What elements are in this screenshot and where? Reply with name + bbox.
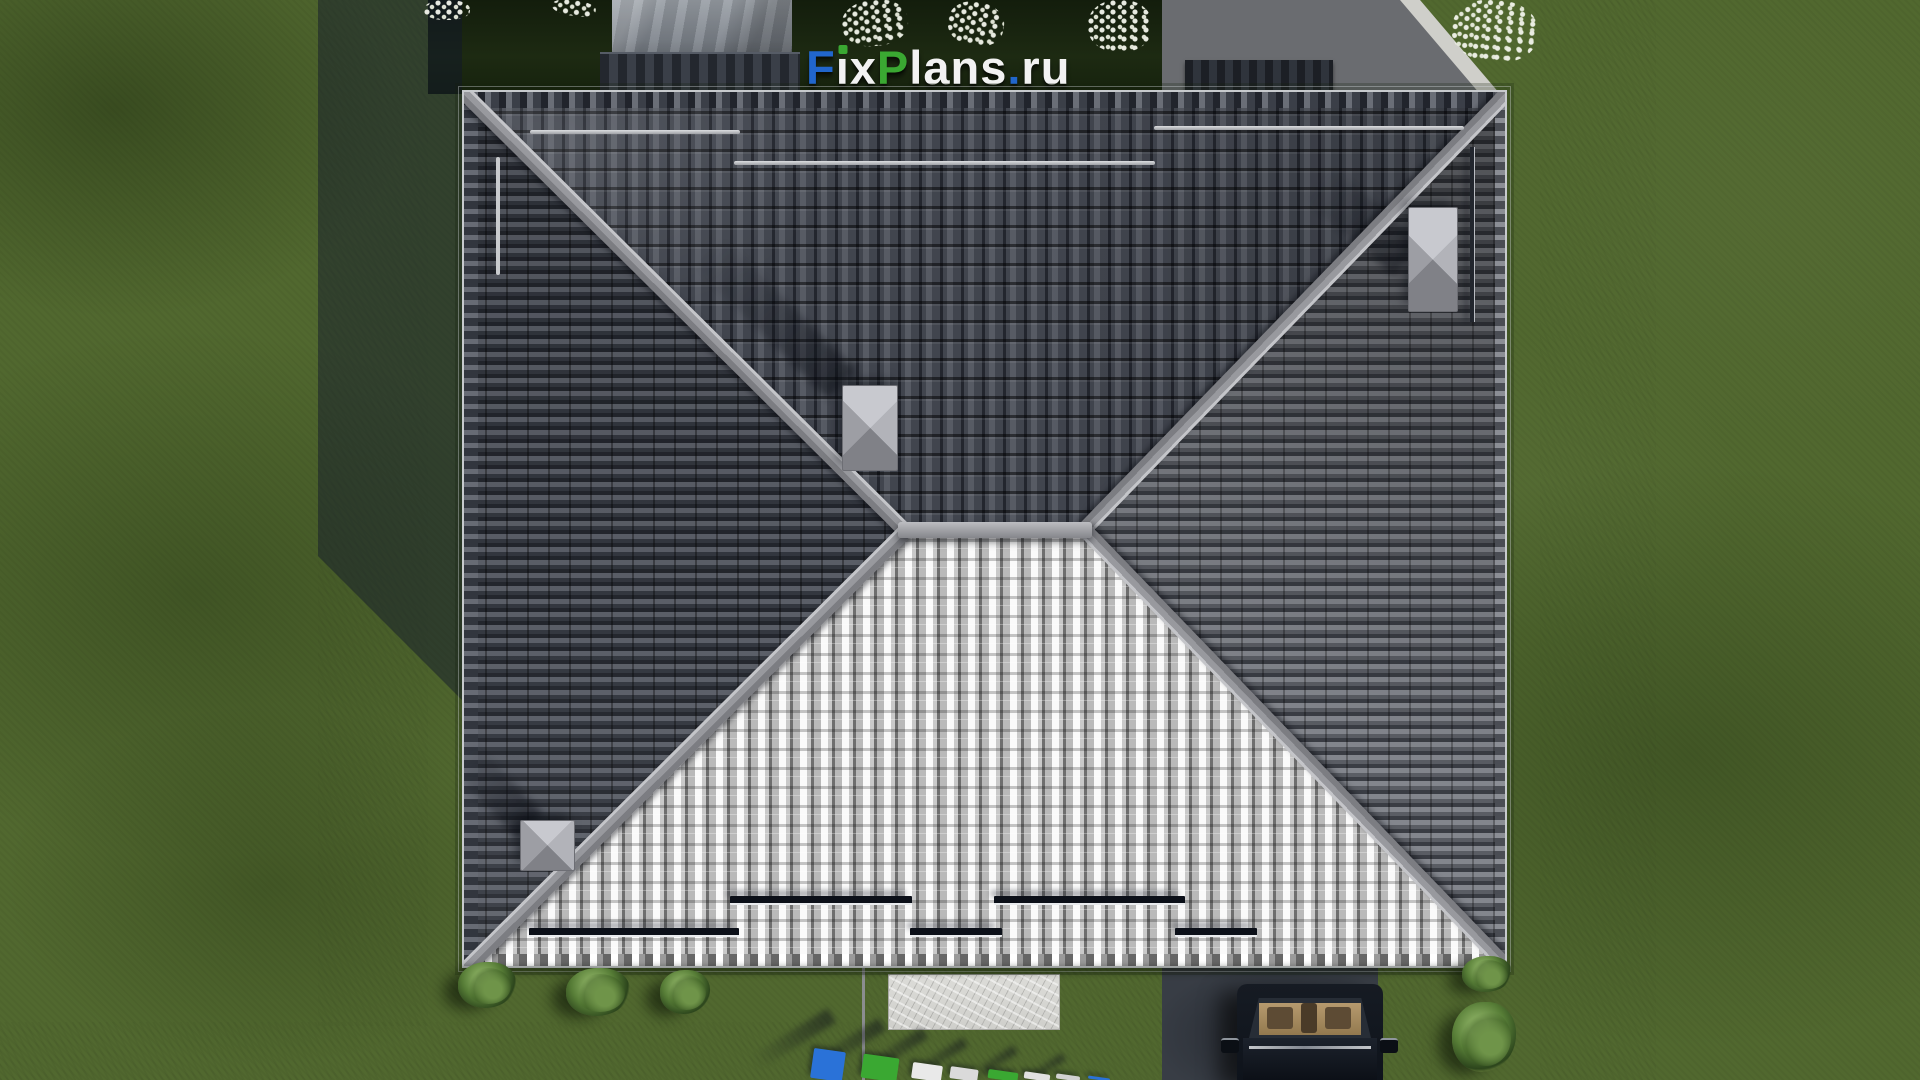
- flower-cluster: [424, 0, 470, 20]
- watermark-bottom-block: [911, 1062, 943, 1080]
- watermark-letter: ı: [836, 44, 850, 91]
- car-seat: [1325, 1007, 1351, 1029]
- watermark-letter: n: [950, 44, 980, 91]
- watermark-letter: a: [923, 44, 950, 91]
- snow-guard: [1154, 126, 1464, 130]
- car-mirror-left: [1221, 1038, 1239, 1053]
- fence-segment: [1185, 60, 1333, 94]
- eave-ribs-left: [464, 92, 478, 968]
- eave-ribs-top: [464, 92, 1507, 108]
- driveway-light-strip: [1378, 966, 1432, 1080]
- watermark-letter: F: [806, 44, 836, 91]
- bottom-walkway: [0, 1022, 880, 1080]
- watermark-letter: r: [1021, 44, 1040, 91]
- bush: [1462, 956, 1512, 992]
- watermark-text: FıxPlans.ru: [806, 44, 1070, 91]
- car-interior: [1259, 1003, 1361, 1035]
- hip-roof: [462, 90, 1507, 968]
- snow-guard: [994, 896, 1185, 905]
- snow-guard: [910, 928, 1002, 937]
- roof-vent: [842, 385, 898, 471]
- watermark-letter-dot: [838, 45, 847, 54]
- snow-guard: [1175, 928, 1257, 937]
- eave-ribs-right: [1495, 92, 1507, 968]
- bush: [1452, 1002, 1516, 1072]
- flower-cluster: [1088, 0, 1152, 52]
- roof-vent: [520, 820, 575, 871]
- bush: [458, 962, 516, 1008]
- watermark-letter: u: [1041, 44, 1071, 91]
- roof-vent: [1408, 207, 1458, 312]
- watermark-letter: .: [1007, 44, 1021, 91]
- watermark-letter: x: [850, 44, 877, 91]
- snow-guard: [530, 130, 740, 134]
- car-mirror-right: [1380, 1038, 1398, 1053]
- snow-guard: [1470, 147, 1475, 322]
- main-ridge: [898, 522, 1092, 538]
- snow-guard: [529, 928, 739, 937]
- right-walkway: [1540, 0, 1656, 1080]
- watermark-letter: P: [877, 44, 909, 91]
- car-seat: [1267, 1007, 1293, 1029]
- car-hood-trim: [1249, 1046, 1371, 1049]
- bush: [660, 970, 710, 1014]
- snow-guard: [734, 161, 1155, 165]
- watermark-letter: l: [909, 44, 923, 91]
- aerial-render-scene: FıxPlans.ru: [0, 0, 1920, 1080]
- snow-guard: [496, 157, 500, 275]
- car-hood: [1243, 1038, 1377, 1080]
- bush: [566, 968, 630, 1016]
- entrance-stone-mat: [888, 974, 1060, 1030]
- snow-guard: [730, 896, 912, 905]
- watermark-letter: s: [980, 44, 1007, 91]
- car-console: [1301, 1003, 1317, 1033]
- watermark-bottom-block: [861, 1054, 900, 1080]
- ribbed-fence-skirt: [600, 52, 800, 94]
- watermark-bottom-block: [810, 1048, 846, 1080]
- stone-structure: [612, 0, 792, 58]
